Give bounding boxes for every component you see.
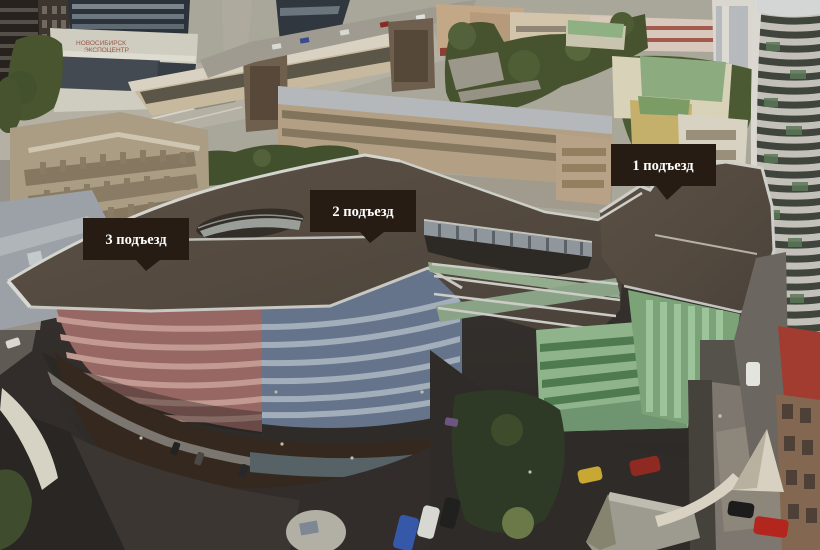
svg-text:3 подъезд: 3 подъезд bbox=[105, 232, 167, 248]
svg-text:1 подъезд: 1 подъезд bbox=[632, 158, 694, 174]
svg-text:2 подъезд: 2 подъезд bbox=[332, 204, 394, 220]
svg-text:НОВОСИБИРСК: НОВОСИБИРСК bbox=[76, 40, 126, 47]
